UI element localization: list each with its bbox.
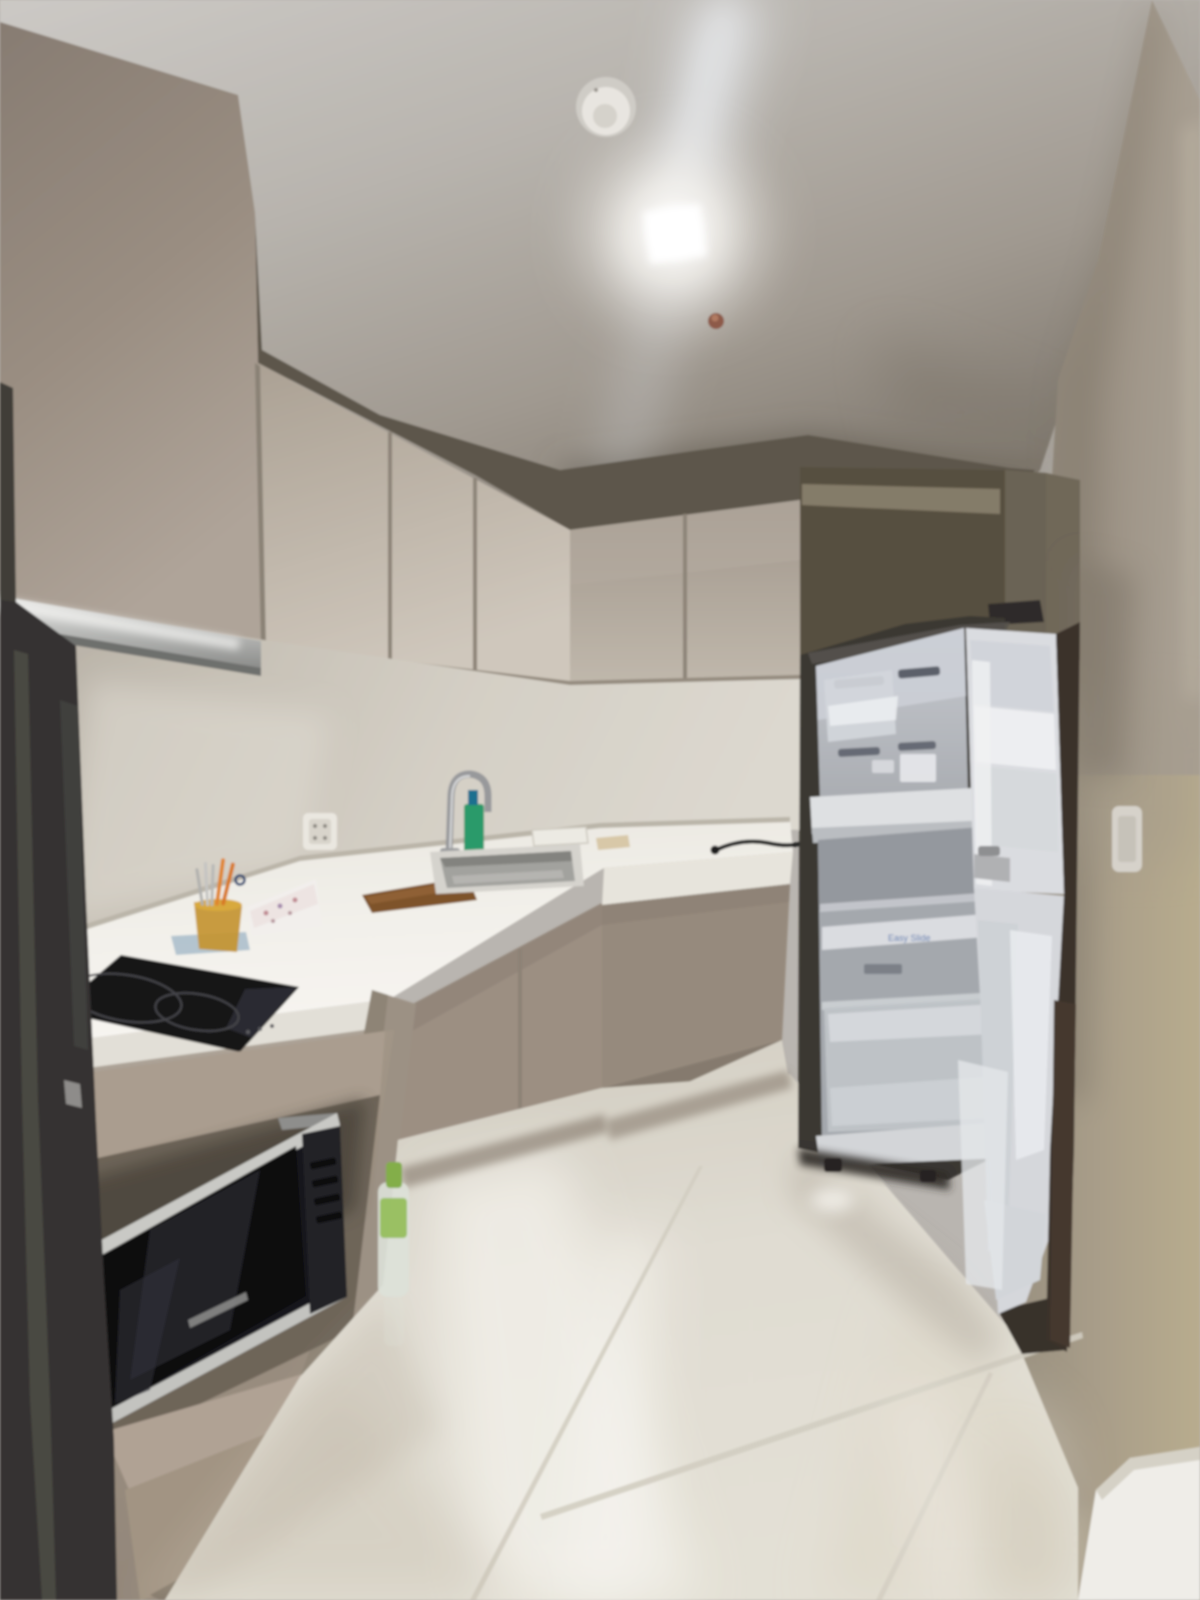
svg-text:Easy Slide: Easy Slide xyxy=(888,933,931,943)
